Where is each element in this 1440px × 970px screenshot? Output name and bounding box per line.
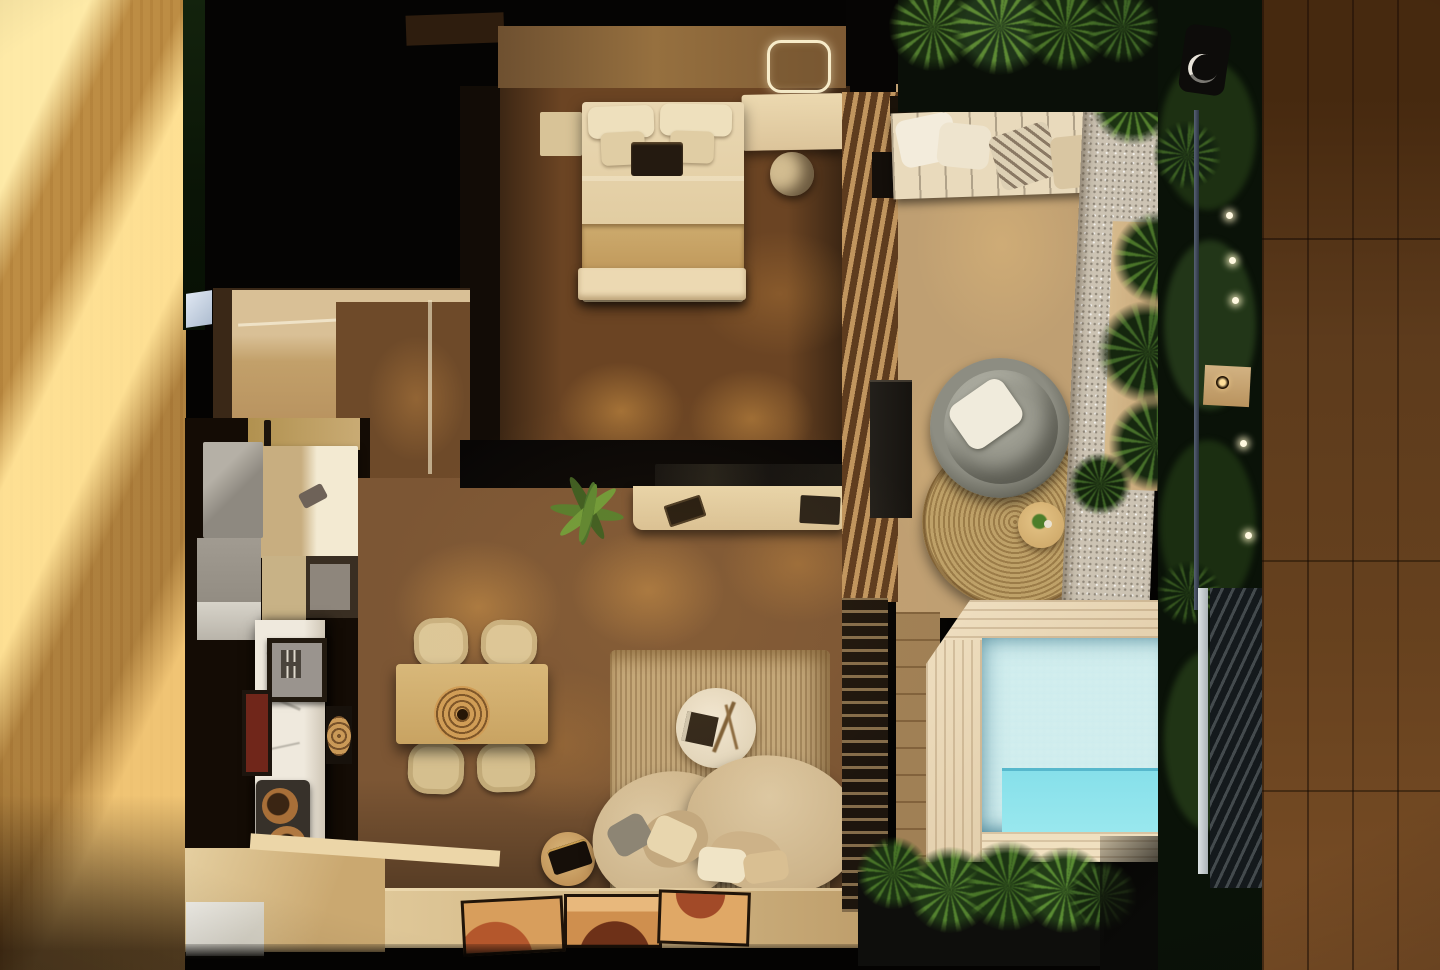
- roof-shadow-left: [196, 0, 502, 302]
- nightstand-left: [540, 112, 582, 156]
- daybed-pillow-cream: [936, 121, 992, 170]
- left-hedge-sliver: [183, 0, 205, 330]
- framed-art-small: [242, 690, 272, 776]
- bed-sheet-fold: [582, 176, 744, 181]
- curved-sofa: [592, 756, 860, 908]
- vanity-desk: [742, 93, 845, 151]
- bed-end-bench: [578, 268, 746, 300]
- garden-plant: [1152, 120, 1222, 190]
- led-mirror: [767, 40, 831, 93]
- kitchen-faucet: [264, 420, 271, 447]
- upper-walkway-planks: [1262, 0, 1440, 970]
- dining-chair: [480, 619, 538, 669]
- framed-art-h-glyph: [281, 650, 301, 678]
- rattan-centerpiece-hole: [457, 709, 468, 720]
- kitchen-open-shelf-interior: [310, 564, 350, 610]
- sofa-pillow-white: [697, 846, 748, 884]
- bed-tray: [631, 142, 683, 176]
- string-light: [1232, 297, 1239, 304]
- coffee-table-book: [681, 711, 719, 747]
- pool-submerged-bench: [1002, 768, 1180, 835]
- round-wall-art: [327, 716, 351, 756]
- sunlit-left-wall: [0, 0, 186, 970]
- plank-joint: [1262, 560, 1440, 562]
- vanity-stool: [770, 152, 814, 196]
- string-light: [1245, 532, 1252, 539]
- string-light: [1226, 212, 1233, 219]
- plank-joint: [1262, 238, 1440, 240]
- dining-chair: [476, 741, 536, 793]
- dining-chair: [413, 617, 469, 669]
- artwork-mat: [657, 889, 751, 946]
- bed-blanket: [582, 224, 744, 270]
- deck-storage-box: [870, 380, 912, 518]
- sofa-pillow-tan: [742, 849, 790, 885]
- string-light: [1240, 440, 1247, 447]
- entry-wall-trim-vertical: [428, 300, 432, 474]
- string-light: [1229, 257, 1236, 264]
- floor-plant: [542, 472, 632, 556]
- plant-cluster: [1068, 452, 1132, 516]
- plank-joint: [1262, 790, 1440, 792]
- dark-fence: [1210, 588, 1262, 888]
- pool-railing-white: [1198, 588, 1208, 874]
- entry-door-glow: [186, 290, 212, 328]
- roof-eave-sliver: [406, 12, 505, 45]
- cooktop-pan-top: [262, 788, 298, 824]
- appliance-tower-upper: [203, 442, 263, 538]
- garden-railing-pole: [1194, 110, 1199, 610]
- console-box: [799, 495, 840, 525]
- appliance-lit-base: [197, 602, 261, 640]
- side-table-cup: [1044, 520, 1052, 528]
- floorplan-render: Night-time bird's-eye 3D render of a com…: [0, 0, 1440, 970]
- artwork-mat: [564, 894, 662, 948]
- pool-frame-plank-lines-left: [926, 640, 984, 862]
- bracket-light-bulb: [1216, 376, 1229, 389]
- dining-chair: [407, 741, 465, 795]
